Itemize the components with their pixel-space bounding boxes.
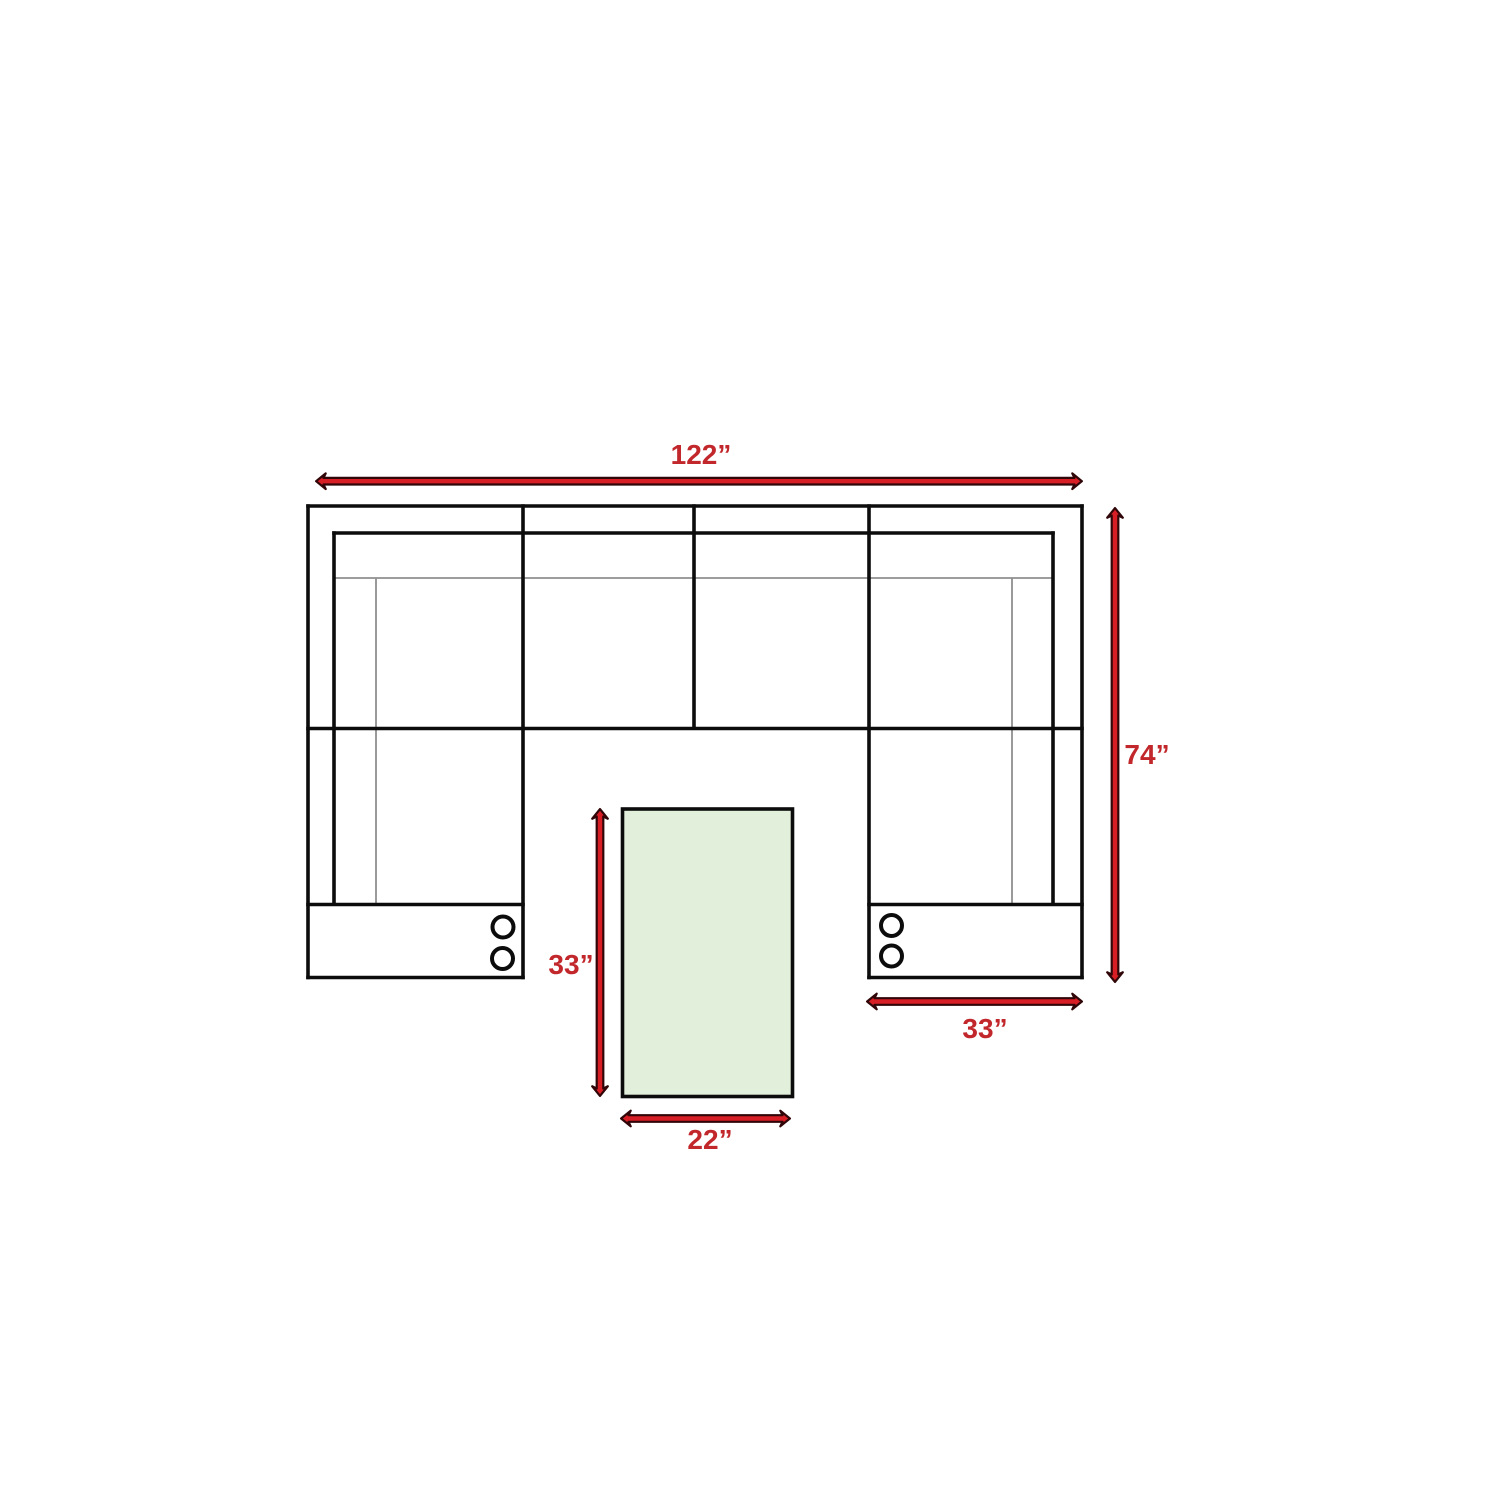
svg-text:122”: 122”: [671, 439, 732, 470]
svg-text:22”: 22”: [687, 1124, 732, 1155]
svg-text:33”: 33”: [962, 1013, 1007, 1044]
svg-text:74”: 74”: [1124, 739, 1169, 770]
svg-text:33”: 33”: [548, 949, 593, 980]
